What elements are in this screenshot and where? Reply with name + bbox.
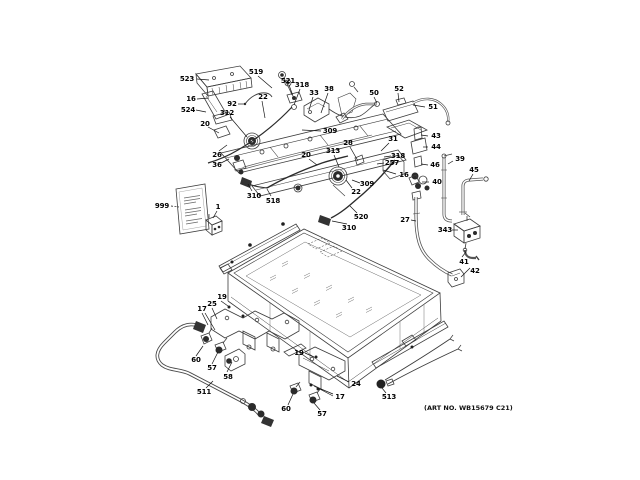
callout-343: 343 <box>438 226 452 234</box>
callout-312: 312 <box>220 109 234 117</box>
callout-313: 313 <box>326 147 340 155</box>
callout-16-a: 16 <box>186 95 195 103</box>
callout-310-b: 310 <box>342 224 356 232</box>
callout-51: 51 <box>428 103 437 111</box>
callout-999: 999 <box>155 202 169 210</box>
callout-518: 518 <box>266 197 280 205</box>
oven-burner-assembly-left <box>157 306 299 428</box>
callout-513: 513 <box>382 393 396 401</box>
callout-1: 1 <box>216 203 221 211</box>
callout-519: 519 <box>249 68 263 76</box>
callout-40: 40 <box>432 178 441 186</box>
callout-521: 521 <box>281 77 295 85</box>
callout-58: 58 <box>223 373 232 381</box>
callout-31: 31 <box>388 135 397 143</box>
callout-60-b: 60 <box>281 405 290 413</box>
callout-60-a: 60 <box>191 356 200 364</box>
callout-43: 43 <box>431 132 440 140</box>
callout-57-a: 57 <box>207 364 216 372</box>
callout-309-a: 309 <box>323 127 337 135</box>
chassis-box <box>228 229 441 388</box>
callout-46: 46 <box>430 161 439 169</box>
callout-26: 26 <box>212 151 221 159</box>
callout-50: 50 <box>369 89 378 97</box>
callout-36: 36 <box>212 161 221 169</box>
callout-45: 45 <box>469 166 478 174</box>
callout-19-b: 19 <box>294 349 303 357</box>
callout-524: 524 <box>181 106 195 114</box>
callout-309-b: 309 <box>360 180 374 188</box>
callout-520: 520 <box>354 213 368 221</box>
callout-27: 27 <box>400 216 409 224</box>
callout-33: 33 <box>309 89 318 97</box>
callout-511: 511 <box>197 388 211 396</box>
parts-diagram-canvas: 523 519 521 318 33 38 16 92 22 524 312 2… <box>0 0 640 480</box>
callout-24: 24 <box>351 380 360 388</box>
callout-44: 44 <box>431 143 440 151</box>
callout-318-a: 318 <box>295 81 309 89</box>
callout-16-b: 16 <box>399 171 408 179</box>
callout-17-a: 17 <box>197 305 206 313</box>
callout-42: 42 <box>470 267 479 275</box>
art-number: (ART NO. WB15679 C21) <box>424 404 513 412</box>
callout-25: 25 <box>207 300 216 308</box>
callout-41: 41 <box>459 258 468 266</box>
callout-92: 92 <box>227 100 236 108</box>
side-trim-rails <box>219 224 448 368</box>
callout-57-b: 57 <box>317 410 326 418</box>
callout-523: 523 <box>180 75 194 83</box>
callout-20-b: 20 <box>301 151 310 159</box>
callout-38: 38 <box>324 85 333 93</box>
callout-22-a: 22 <box>258 93 267 101</box>
callout-17-b: 17 <box>335 393 344 401</box>
callout-39: 39 <box>455 155 464 163</box>
callout-52: 52 <box>394 85 403 93</box>
diagram-line-art <box>0 0 640 480</box>
callout-20-a: 20 <box>200 120 209 128</box>
callout-257: 257 <box>385 159 399 167</box>
callout-310-a: 310 <box>247 192 261 200</box>
igniter-wires <box>208 107 395 226</box>
callout-19-a: 19 <box>217 293 226 301</box>
oven-burner-assembly-center <box>284 335 462 404</box>
callout-22-b: 22 <box>351 188 360 196</box>
callout-28: 28 <box>343 139 352 147</box>
